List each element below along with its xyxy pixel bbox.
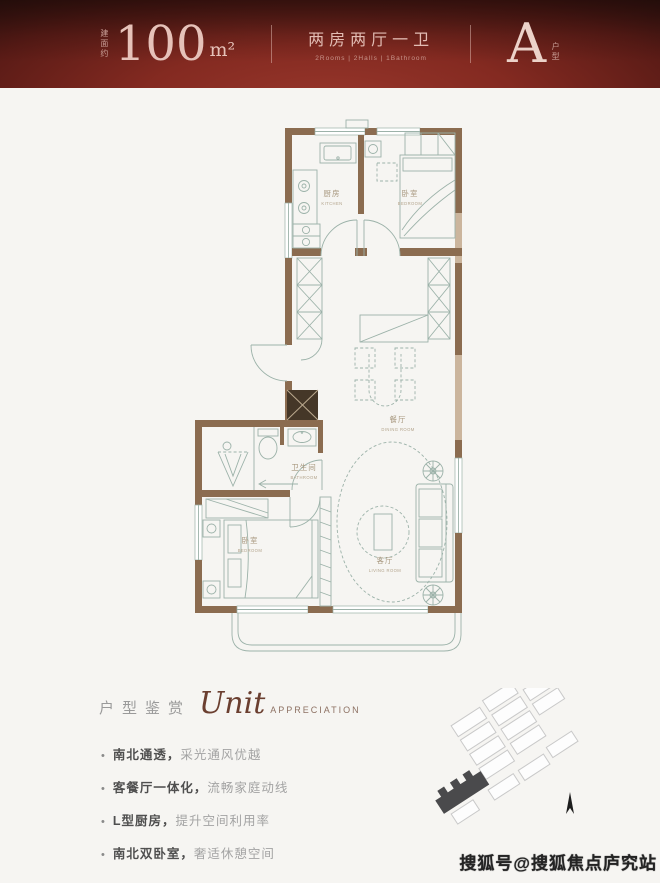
coffee-table — [357, 506, 409, 558]
nightstand-north — [365, 141, 397, 181]
bedroom-north-door — [364, 220, 400, 256]
layout-en: 2Rooms | 2Halls | 1Bathroom — [315, 55, 427, 62]
flyer-page: 建面约 100 m² 两房两厅一卫 2Rooms | 2Halls | 1Bat… — [0, 0, 660, 883]
room-label-living-en: LIVING ROOM — [369, 568, 401, 573]
floor-plan: 厨房 KITCHEN 卧室 BEDROOM 餐厅 DINING ROOM 卫生间… — [180, 118, 480, 663]
bullet-dot: • — [101, 783, 106, 795]
feature-item: •L型厨房，提升空间利用率 — [101, 810, 429, 829]
appreciation-title-script: Unit — [199, 692, 265, 716]
site-buildings — [420, 688, 590, 827]
kitchen-door — [321, 220, 357, 256]
sofa — [416, 484, 453, 582]
room-label-kitchen: 厨房 — [324, 188, 341, 198]
shower — [218, 427, 254, 490]
watermark: 搜狐号@搜狐焦点庐究站 — [459, 849, 657, 874]
unit-suffix: 户型 — [550, 42, 561, 62]
north-arrow — [566, 792, 574, 814]
wardrobe-north — [405, 133, 455, 155]
bedroom-south-door — [290, 497, 320, 527]
room-label-bedroom-n: 卧室 — [402, 188, 419, 198]
room-label-bedroom-s-en: BEDROOM — [238, 548, 263, 553]
feature-item: •客餐厅一体化，流畅家庭动线 — [101, 777, 429, 796]
unit-letter: A — [507, 17, 546, 71]
layout-spec: 两房两厅一卫 2Rooms | 2Halls | 1Bathroom — [308, 26, 434, 62]
kitchen-appliances — [293, 224, 320, 248]
plant-top — [423, 461, 443, 481]
bullet-dot: • — [101, 816, 106, 828]
area-prefix: 建面约 — [99, 29, 110, 59]
room-label-kitchen-en: KITCHEN — [321, 201, 342, 206]
nightstand-south-1 — [203, 520, 220, 537]
feature-item: •南北通透，采光通风优越 — [101, 744, 429, 763]
header-divider — [271, 25, 272, 63]
nightstand-south-2 — [203, 581, 220, 598]
balcony — [232, 613, 461, 651]
layout-zh: 两房两厅一卫 — [308, 26, 434, 50]
duct-shaft — [287, 390, 318, 420]
feature-item: •南北双卧室，奢适休憩空间 — [101, 843, 429, 862]
room-label-bedroom-n-en: BEDROOM — [398, 201, 423, 206]
room-label-living: 客厅 — [377, 555, 394, 565]
stove — [293, 170, 317, 224]
room-label-dining-en: DINING ROOM — [381, 427, 414, 432]
flue — [346, 120, 368, 128]
dining-set — [355, 348, 415, 406]
desk — [360, 315, 428, 342]
header-banner: 建面约 100 m² 两房两厅一卫 2Rooms | 2Halls | 1Bat… — [0, 0, 660, 88]
feature-list: •南北通透，采光通风优越 •客餐厅一体化，流畅家庭动线 •L型厨房，提升空间利用… — [101, 744, 429, 862]
appreciation-title-zh: 户型鉴赏 — [99, 697, 191, 718]
bullet-dot: • — [101, 750, 106, 762]
room-label-dining: 餐厅 — [390, 415, 407, 424]
room-label-bedroom-s: 卧室 — [242, 535, 259, 545]
area-value: 100 — [115, 20, 207, 68]
bathroom-sink — [288, 429, 316, 446]
storage-cabinet-left — [297, 258, 322, 360]
bed-south — [224, 520, 318, 598]
bullet-dot: • — [101, 849, 106, 861]
highlighted-building — [431, 765, 489, 814]
wardrobe-column-right — [428, 258, 450, 339]
toilet — [258, 429, 278, 459]
appreciation-title: 户型鉴赏 Unit APPRECIATION — [99, 692, 429, 718]
wardrobe-south — [206, 499, 268, 518]
area-unit: m² — [209, 39, 235, 68]
site-map — [420, 688, 610, 828]
entry-door — [251, 345, 287, 381]
kitchen-sink — [320, 143, 356, 163]
area-spec: 建面约 100 m² — [99, 20, 235, 68]
appreciation-title-en: APPRECIATION — [270, 705, 360, 715]
room-label-bathroom: 卫生间 — [291, 462, 317, 472]
header-divider — [470, 25, 471, 63]
tv-cabinet — [320, 497, 331, 606]
room-label-bathroom-en: BATHROOM — [290, 475, 317, 480]
appreciation-section: 户型鉴赏 Unit APPRECIATION •南北通透，采光通风优越 •客餐厅… — [99, 692, 429, 876]
unit-spec: A 户型 — [507, 17, 561, 71]
plant-bottom — [423, 585, 443, 605]
